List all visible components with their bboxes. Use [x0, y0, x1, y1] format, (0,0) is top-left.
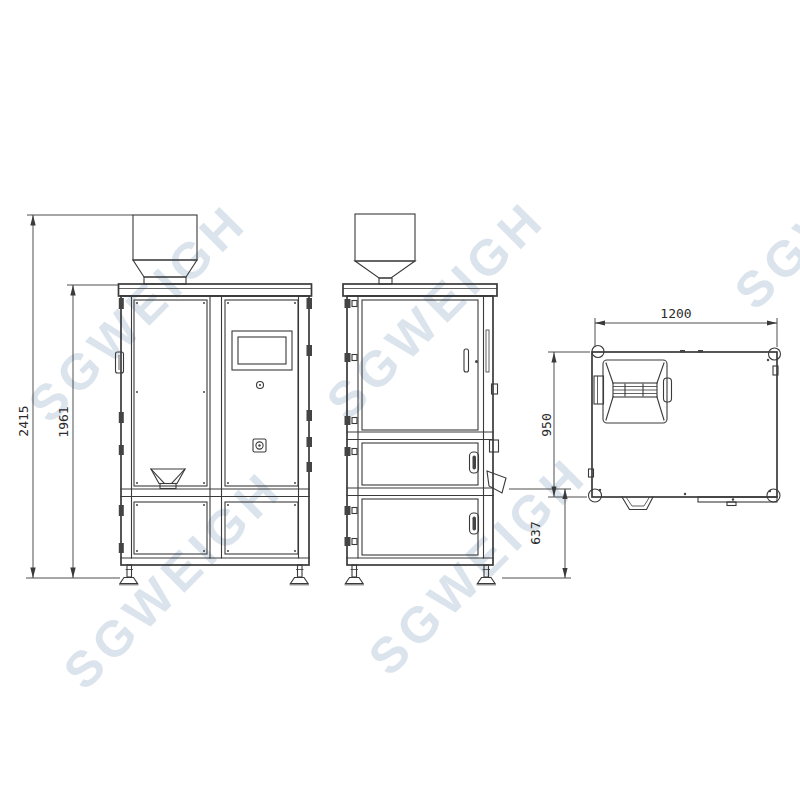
- dimension-label: 1200: [660, 306, 691, 321]
- corner-feet: [589, 346, 781, 503]
- power-switch: [253, 439, 266, 452]
- touchscreen-display: [232, 331, 292, 370]
- watermark-text: SGWEIGH: [316, 190, 556, 430]
- leveling-foot: [345, 565, 365, 585]
- hopper-top-view: [594, 360, 672, 423]
- top-view: [589, 346, 781, 510]
- dimension-label: 950: [539, 413, 554, 436]
- top-view-body: [592, 352, 777, 497]
- dimension-width: 1200: [595, 306, 777, 347]
- side-rear-fittings: [487, 384, 506, 493]
- side-middle-handle: [470, 452, 479, 473]
- dimension-label: 2415: [16, 405, 31, 436]
- side-middle-door: [362, 443, 478, 485]
- discharge-chute-side: [487, 471, 506, 493]
- technical-drawing: SGWEIGH SGWEIGH SGWEIGH SGWEIGH SGWEIGH: [0, 0, 800, 800]
- top-view-fittings: [589, 350, 779, 510]
- watermark-text: SGWEIGH: [724, 80, 800, 320]
- round-button: [257, 382, 264, 389]
- dimension-label: 1961: [56, 406, 71, 437]
- watermark-layer: SGWEIGH SGWEIGH SGWEIGH SGWEIGH SGWEIGH: [18, 80, 800, 700]
- leveling-foot: [290, 565, 310, 585]
- infeed-hopper-side: [355, 214, 415, 284]
- dimension-label: 637: [528, 521, 543, 544]
- watermark-text: SGWEIGH: [53, 460, 293, 700]
- front-right-door: [225, 300, 298, 486]
- side-door-handle: [464, 349, 478, 372]
- hopper-bracket: [594, 376, 604, 404]
